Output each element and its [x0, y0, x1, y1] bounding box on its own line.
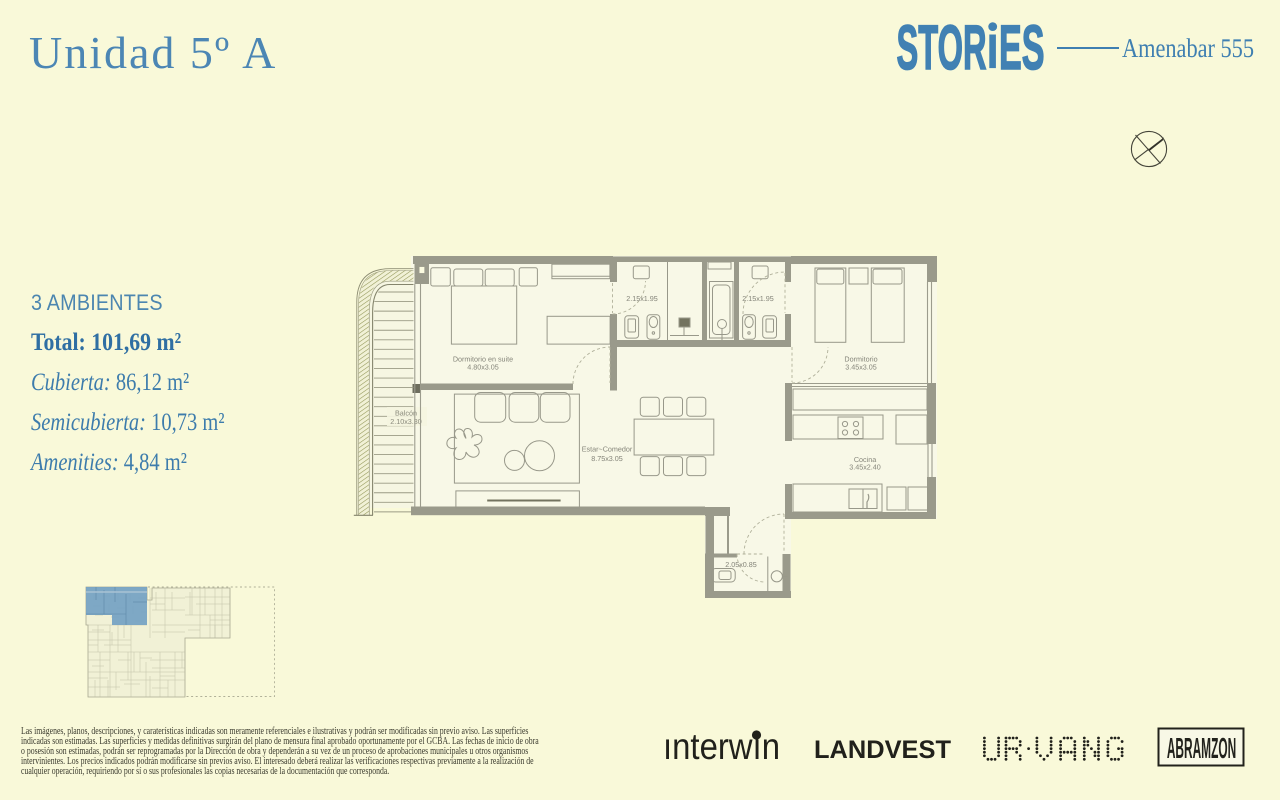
svg-text:Amenabar 555: Amenabar 555	[1122, 33, 1254, 63]
svg-text:ınterwın: ınterwın	[663, 726, 780, 765]
svg-text:Estar~Comedor: Estar~Comedor	[582, 445, 633, 454]
svg-text:4.80x3.05: 4.80x3.05	[467, 363, 499, 372]
svg-text:2.15x1.95: 2.15x1.95	[742, 294, 774, 303]
svg-text:8.75x3.05: 8.75x3.05	[591, 454, 623, 463]
svg-text:ABRAMZON: ABRAMZON	[1167, 733, 1236, 765]
svg-text:ES: ES	[999, 15, 1045, 75]
svg-text:2.10x3.30: 2.10x3.30	[390, 417, 422, 426]
svg-text:3.45x3.05: 3.45x3.05	[845, 363, 877, 372]
svg-text:2.05x0.85: 2.05x0.85	[725, 560, 757, 569]
svg-text:2.15x1.95: 2.15x1.95	[626, 294, 658, 303]
svg-text:STOR: STOR	[897, 15, 987, 75]
svg-text:3.45x2.40: 3.45x2.40	[849, 463, 881, 472]
svg-text:LANDVEST: LANDVEST	[814, 736, 951, 763]
